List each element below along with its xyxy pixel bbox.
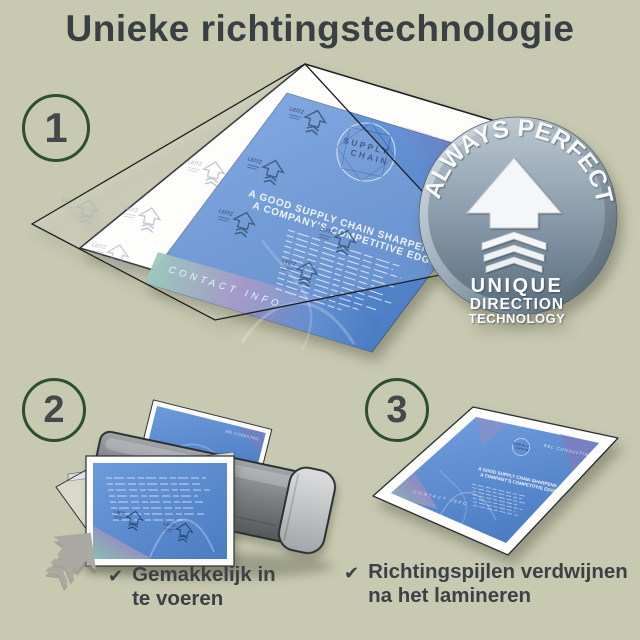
step-number-2: 2: [43, 389, 64, 432]
step-number-3: 3: [386, 389, 407, 432]
document-exiting-front: [86, 456, 234, 566]
checkmark-icon: ✔: [108, 563, 123, 611]
step-circle-1: 1: [22, 94, 90, 162]
badge-line1: UNIQUE: [471, 275, 564, 297]
caption-line: Gemakkelijk in: [132, 563, 276, 587]
caption-easy-feed: ✔ Gemakkelijk in te voeren: [108, 563, 276, 611]
pouch-corner-tip: [56, 470, 90, 534]
step-circle-3: 3: [365, 378, 429, 442]
caption-line: te voeren: [132, 587, 276, 611]
step-number-1: 1: [44, 104, 67, 152]
infographic-stage: Unieke richtingstechnologie: [0, 0, 640, 640]
caption-line: na het lamineren: [368, 584, 628, 608]
checkmark-icon: ✔: [344, 560, 359, 608]
caption-arrows-disappear-text: Richtingspijlen verdwijnen na het lamine…: [368, 560, 628, 608]
caption-arrows-disappear: ✔ Richtingspijlen verdwijnen na het lami…: [344, 560, 628, 608]
scene-illustration: LEITZ BBL CONSULTING: [0, 0, 640, 640]
caption-easy-feed-text: Gemakkelijk in te voeren: [132, 563, 276, 611]
laminator-scene: BBL CONSULTING: [56, 400, 338, 566]
badge-line3: TECHNOLOGY: [469, 311, 566, 326]
caption-line: Richtingspijlen verdwijnen: [368, 560, 628, 584]
step-circle-2: 2: [22, 378, 86, 442]
